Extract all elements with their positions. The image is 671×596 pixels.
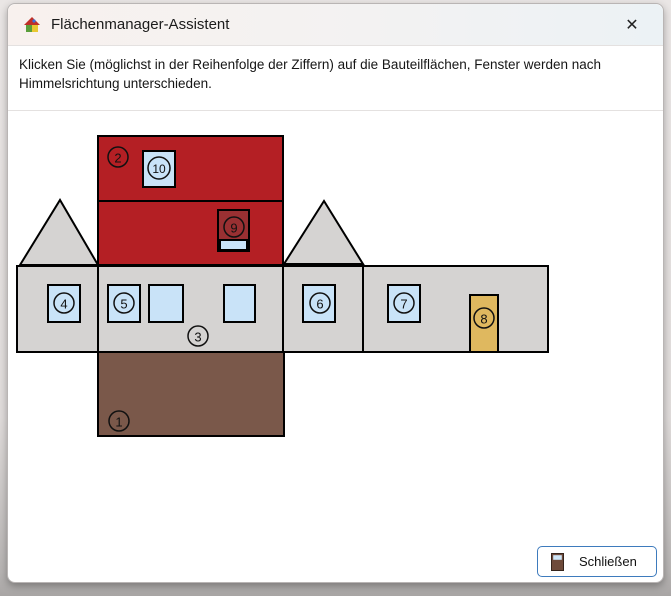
face-floor[interactable] <box>98 352 284 436</box>
face-roof-lower[interactable] <box>98 201 283 265</box>
house-icon <box>23 16 41 33</box>
instruction-text: Klicken Sie (möglichst in der Reihenfolg… <box>8 47 663 111</box>
schliessen-button[interactable]: Schließen <box>537 546 657 577</box>
titlebar[interactable]: Flächenmanager-Assistent ✕ <box>8 4 663 46</box>
face-roof-upper[interactable] <box>98 136 283 201</box>
door-icon <box>551 553 564 571</box>
roof-window-10[interactable] <box>143 151 175 187</box>
window-front-middle[interactable] <box>149 285 183 322</box>
roof-window-9-glass[interactable] <box>220 240 247 250</box>
close-icon: ✕ <box>625 15 638 34</box>
screen-background: Flächenmanager-Assistent ✕ Klicken Sie (… <box>0 0 671 596</box>
window-title: Flächenmanager-Assistent <box>51 16 615 33</box>
window-front-right[interactable] <box>224 285 255 322</box>
door-8[interactable] <box>470 295 498 352</box>
window-6[interactable] <box>303 285 335 322</box>
window-7[interactable] <box>388 285 420 322</box>
close-button[interactable]: ✕ <box>615 10 649 40</box>
window-5[interactable] <box>108 285 140 322</box>
window-4[interactable] <box>48 285 80 322</box>
schliessen-label: Schließen <box>579 554 637 569</box>
